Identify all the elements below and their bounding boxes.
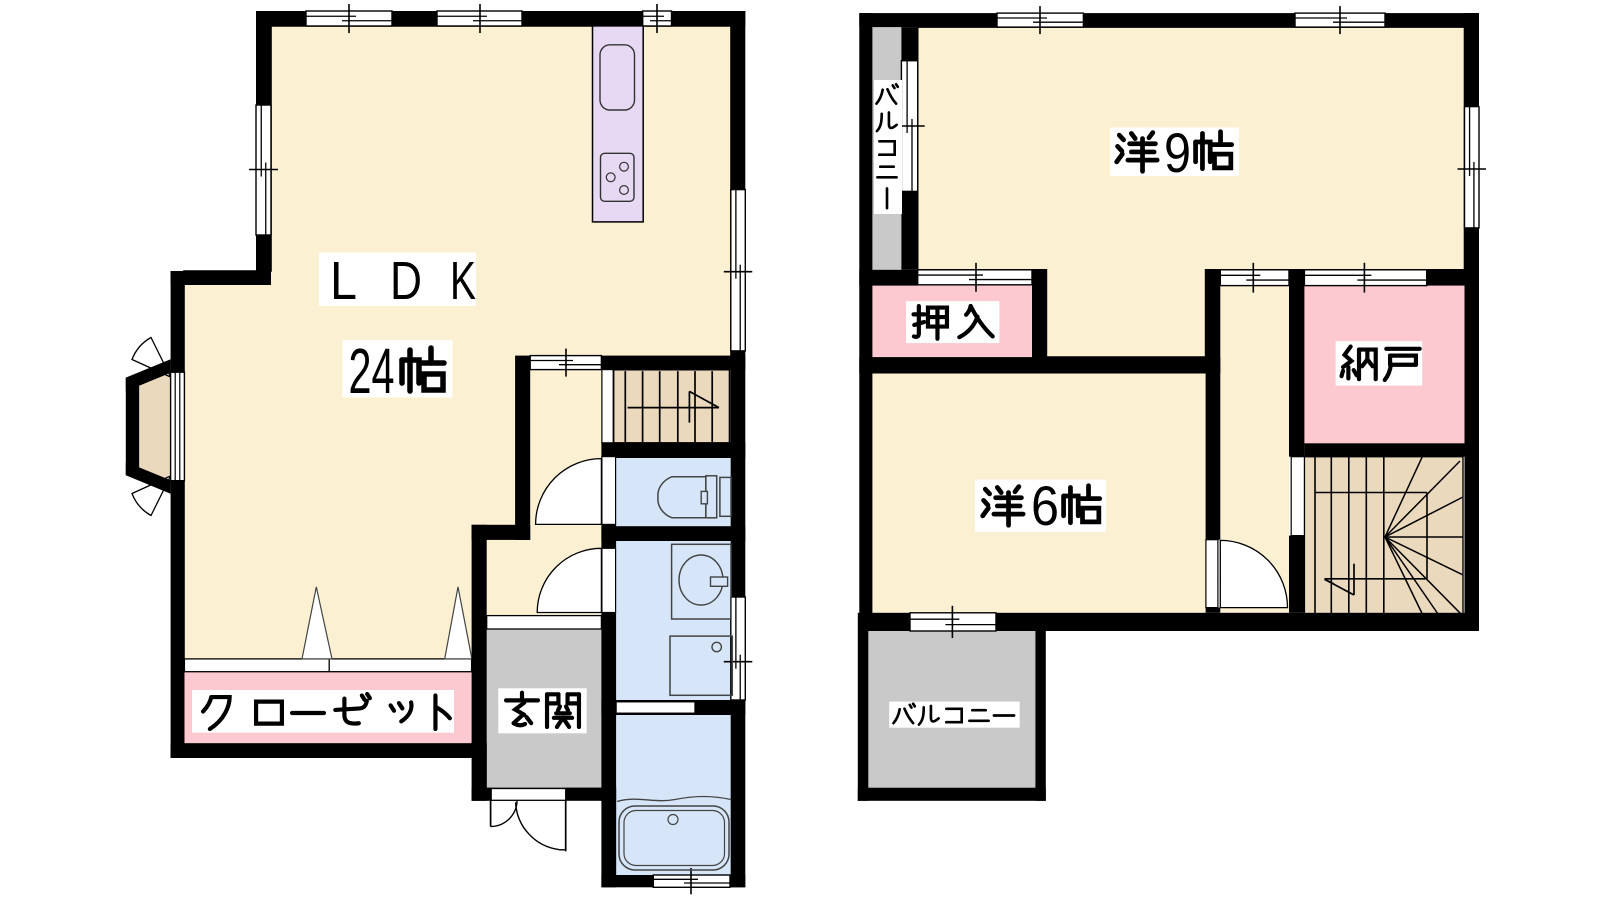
svg-text:L: L	[330, 251, 357, 311]
svg-text:24: 24	[349, 335, 395, 407]
svg-text:9: 9	[1164, 121, 1191, 184]
svg-text:K: K	[450, 251, 476, 311]
svg-text:D: D	[390, 251, 422, 311]
svg-text:6: 6	[1031, 474, 1059, 537]
